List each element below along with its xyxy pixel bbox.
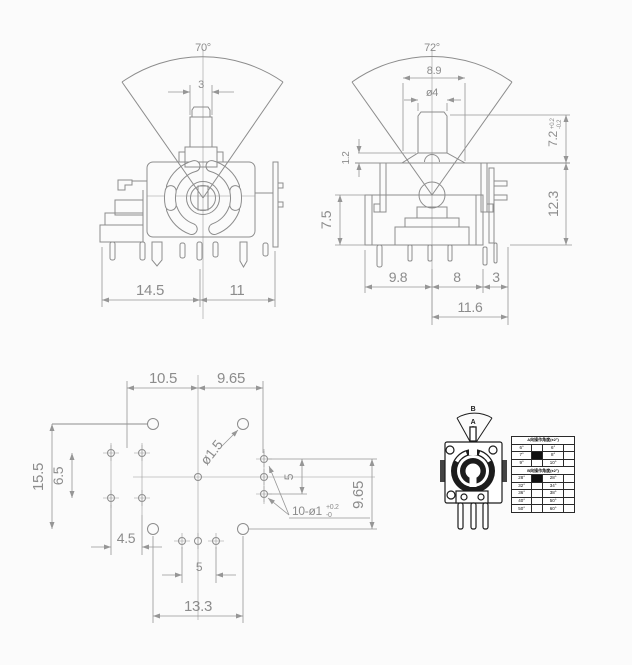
front-view-outline [100,49,283,319]
table-row: 40° 50° [512,497,575,505]
dim-side-pitch-left: 9.8 [389,269,408,285]
dim-fp-bottom: 13.3 [184,598,212,615]
travel-fan-front [122,57,283,198]
label-fp-pin-holes-tol-minus: -0 [326,512,332,519]
pcb-footprint-drawing: 10.5 9.65 15.5 6.5 ø1.5 4.5 5 [25,355,385,630]
joystick-pictogram: B A [438,398,510,538]
table-row: 9° 10° [512,459,575,467]
dim-fp-left-outer: 15.5 [30,463,47,491]
dim-front-shaft-width: 3 [198,79,204,91]
pictogram-body [440,426,507,503]
dim-fp-right-outer: 9.65 [350,481,367,509]
label-fp-pin-holes: 10-ø1 [292,504,322,518]
right-assembly-side [489,168,507,243]
dim-side-flange-width: 8.9 [427,65,442,77]
table-row: 36° 38° [512,490,575,498]
dim-front-left: 14.5 [136,282,164,299]
dim-front-right: 11 [230,282,245,299]
side-view-drawing: 72° 8.9 ø4 1.2 7.5 [300,35,590,325]
dim-side-body-height: 7.5 [318,210,334,229]
dim-fp-top-left: 10.5 [149,370,177,387]
label-direction-a: A [471,419,476,426]
selected-angle-marker [532,452,543,460]
shaft-front [179,107,223,167]
label-fp-hole-dia: ø1.5 [197,436,226,467]
dim-side-shaft-height: 7.2 [546,130,560,146]
dim-side-flange-thickness: 1.2 [341,151,352,165]
dim-fp-right-pitch: 5 [282,473,296,480]
table-row: 28° 28° [512,474,575,482]
dim-front-angle: 70° [195,42,211,54]
side-view-outline [352,49,570,319]
label-direction-b: B [471,406,476,413]
dim-fp-pin-pitch: 5 [196,560,203,574]
dim-side-shaft-height-tol-plus: +0.2 [550,117,556,129]
table-header-a: A向操作角度(±2°) [512,437,575,445]
table-row: 50° 60° [512,505,575,513]
dim-side-angle: 72° [424,42,440,54]
table-header-b: B向操作角度(±2°) [512,467,575,475]
side-view-dimensions: 72° 8.9 ø4 1.2 7.5 [318,42,572,325]
table-row: 7° 8° [512,452,575,460]
right-plate [255,162,283,247]
body-side [365,182,483,245]
dim-side-shaft-height-tol-minus: -0.2 [557,119,563,129]
pins-side [377,243,497,267]
footprint-outline [52,375,375,620]
dim-fp-top-right: 9.65 [217,370,245,387]
table-row: 6° 6° [512,444,575,452]
technical-drawing-sheet: 70° 3 14.5 11 [0,0,632,665]
selected-angle-marker [532,474,543,482]
dim-side-pitch-right: 3 [492,269,500,285]
label-fp-pin-holes-tol-plus: +0.2 [326,504,339,511]
dim-side-overall-height: 12.3 [545,190,561,217]
table-row: 32° 34° [512,482,575,490]
angle-option-table: A向操作角度(±2°) 6° 6° 7° 8° 9° 10° B向操作角度(±2… [511,436,575,513]
dim-fp-left-inner: 6.5 [50,466,66,485]
dim-side-pitch-overall: 11.6 [457,299,483,315]
left-bracket [100,180,147,242]
dim-fp-small: 4.5 [117,530,136,546]
pins-front [110,242,268,267]
pictogram-pins [458,503,488,529]
dim-side-shaft-dia: ø4 [426,87,438,99]
dim-side-pitch-mid: 8 [453,269,461,285]
shaft-side [402,112,465,163]
front-view-drawing: 70° 3 14.5 11 [40,35,330,325]
footprint-dimensions: 10.5 9.65 15.5 6.5 ø1.5 4.5 5 [30,370,377,623]
